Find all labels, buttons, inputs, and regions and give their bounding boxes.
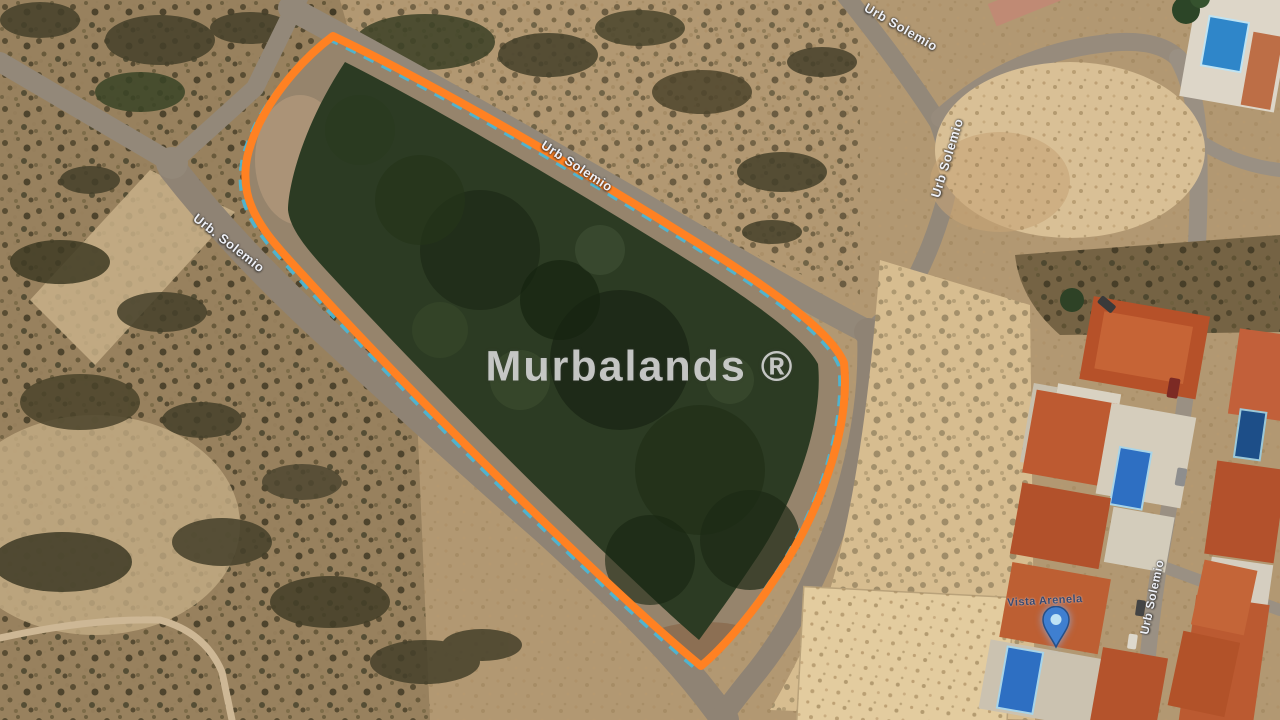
satellite-map: Urb. Solemio Urb Solemio Urb Solemio Urb…: [0, 0, 1280, 720]
satellite-imagery: [0, 0, 1280, 720]
